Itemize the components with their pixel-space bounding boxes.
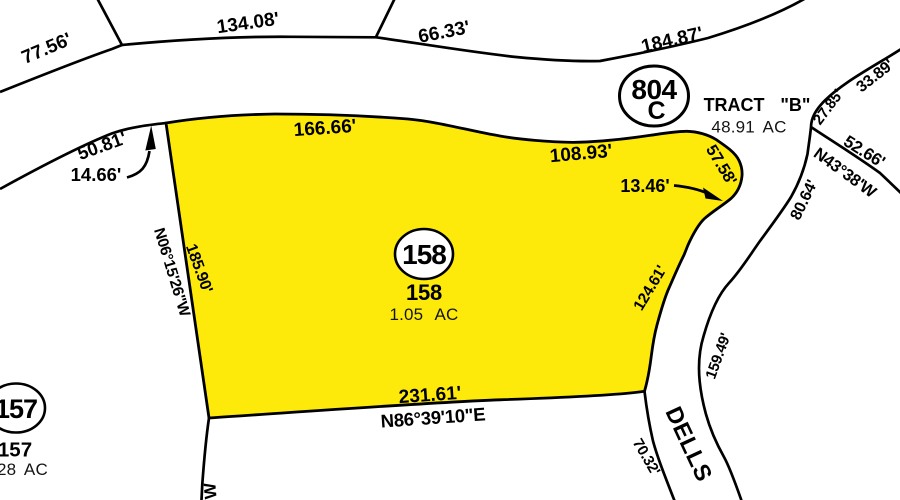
svg-text:C: C [647,97,665,125]
svg-text:166.66': 166.66' [293,116,357,141]
svg-text:TRACT "B": TRACT "B" [704,95,811,115]
svg-text:1.05 AC: 1.05 AC [389,305,458,324]
svg-text:158: 158 [406,280,442,305]
svg-text:.28 AC: .28 AC [0,460,48,479]
svg-text:14.66': 14.66' [71,164,122,185]
svg-text:157: 157 [0,394,37,424]
svg-text:48.91 AC: 48.91 AC [711,118,786,137]
svg-text:13.46': 13.46' [620,176,669,196]
svg-text:W: W [200,481,220,500]
svg-text:231.61': 231.61' [398,383,462,408]
svg-text:157: 157 [0,439,32,462]
svg-text:158: 158 [402,239,446,270]
